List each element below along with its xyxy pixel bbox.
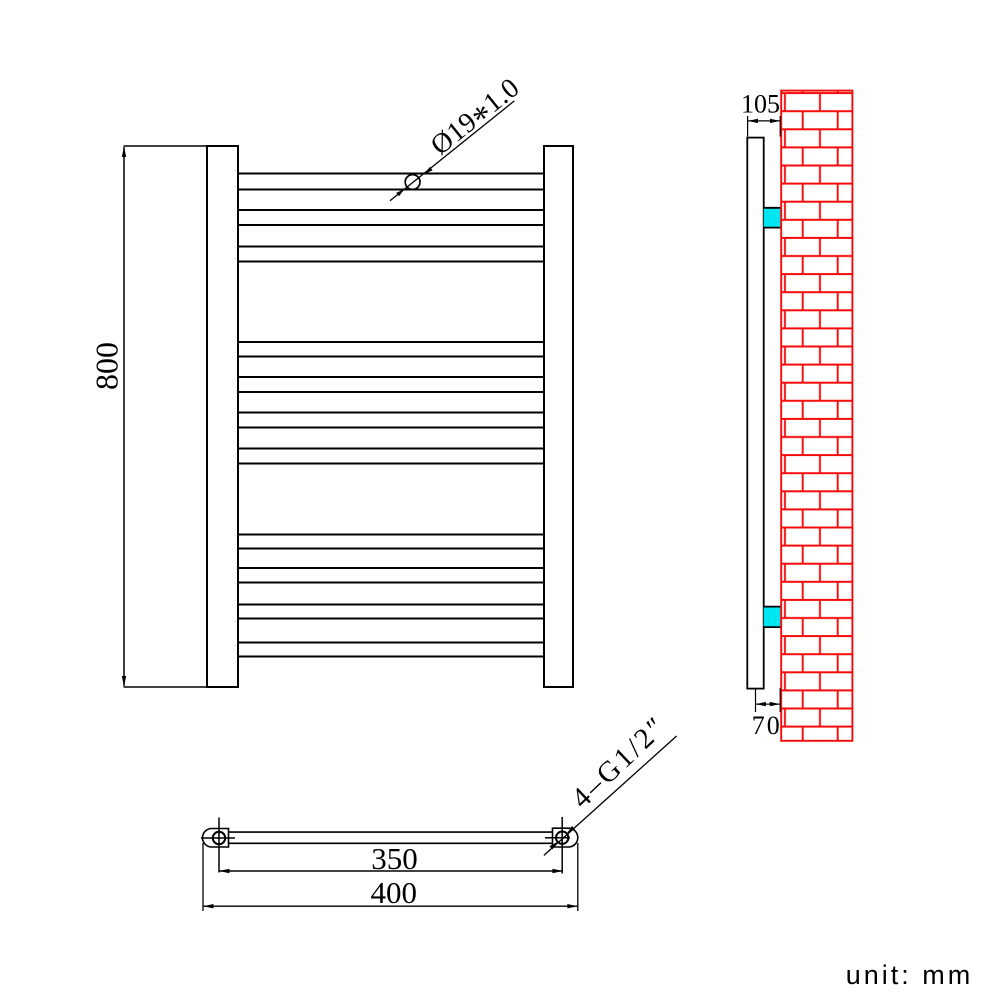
svg-text:350: 350 [371, 841, 418, 876]
svg-text:Ø19*1.0: Ø19*1.0 [425, 72, 532, 169]
svg-text:4–G1/2″: 4–G1/2″ [565, 710, 673, 815]
svg-text:800: 800 [89, 342, 125, 390]
svg-text:400: 400 [371, 875, 418, 910]
svg-text:70: 70 [752, 711, 782, 740]
svg-text:105: 105 [741, 89, 780, 118]
svg-text:unit: mm: unit: mm [846, 960, 974, 990]
